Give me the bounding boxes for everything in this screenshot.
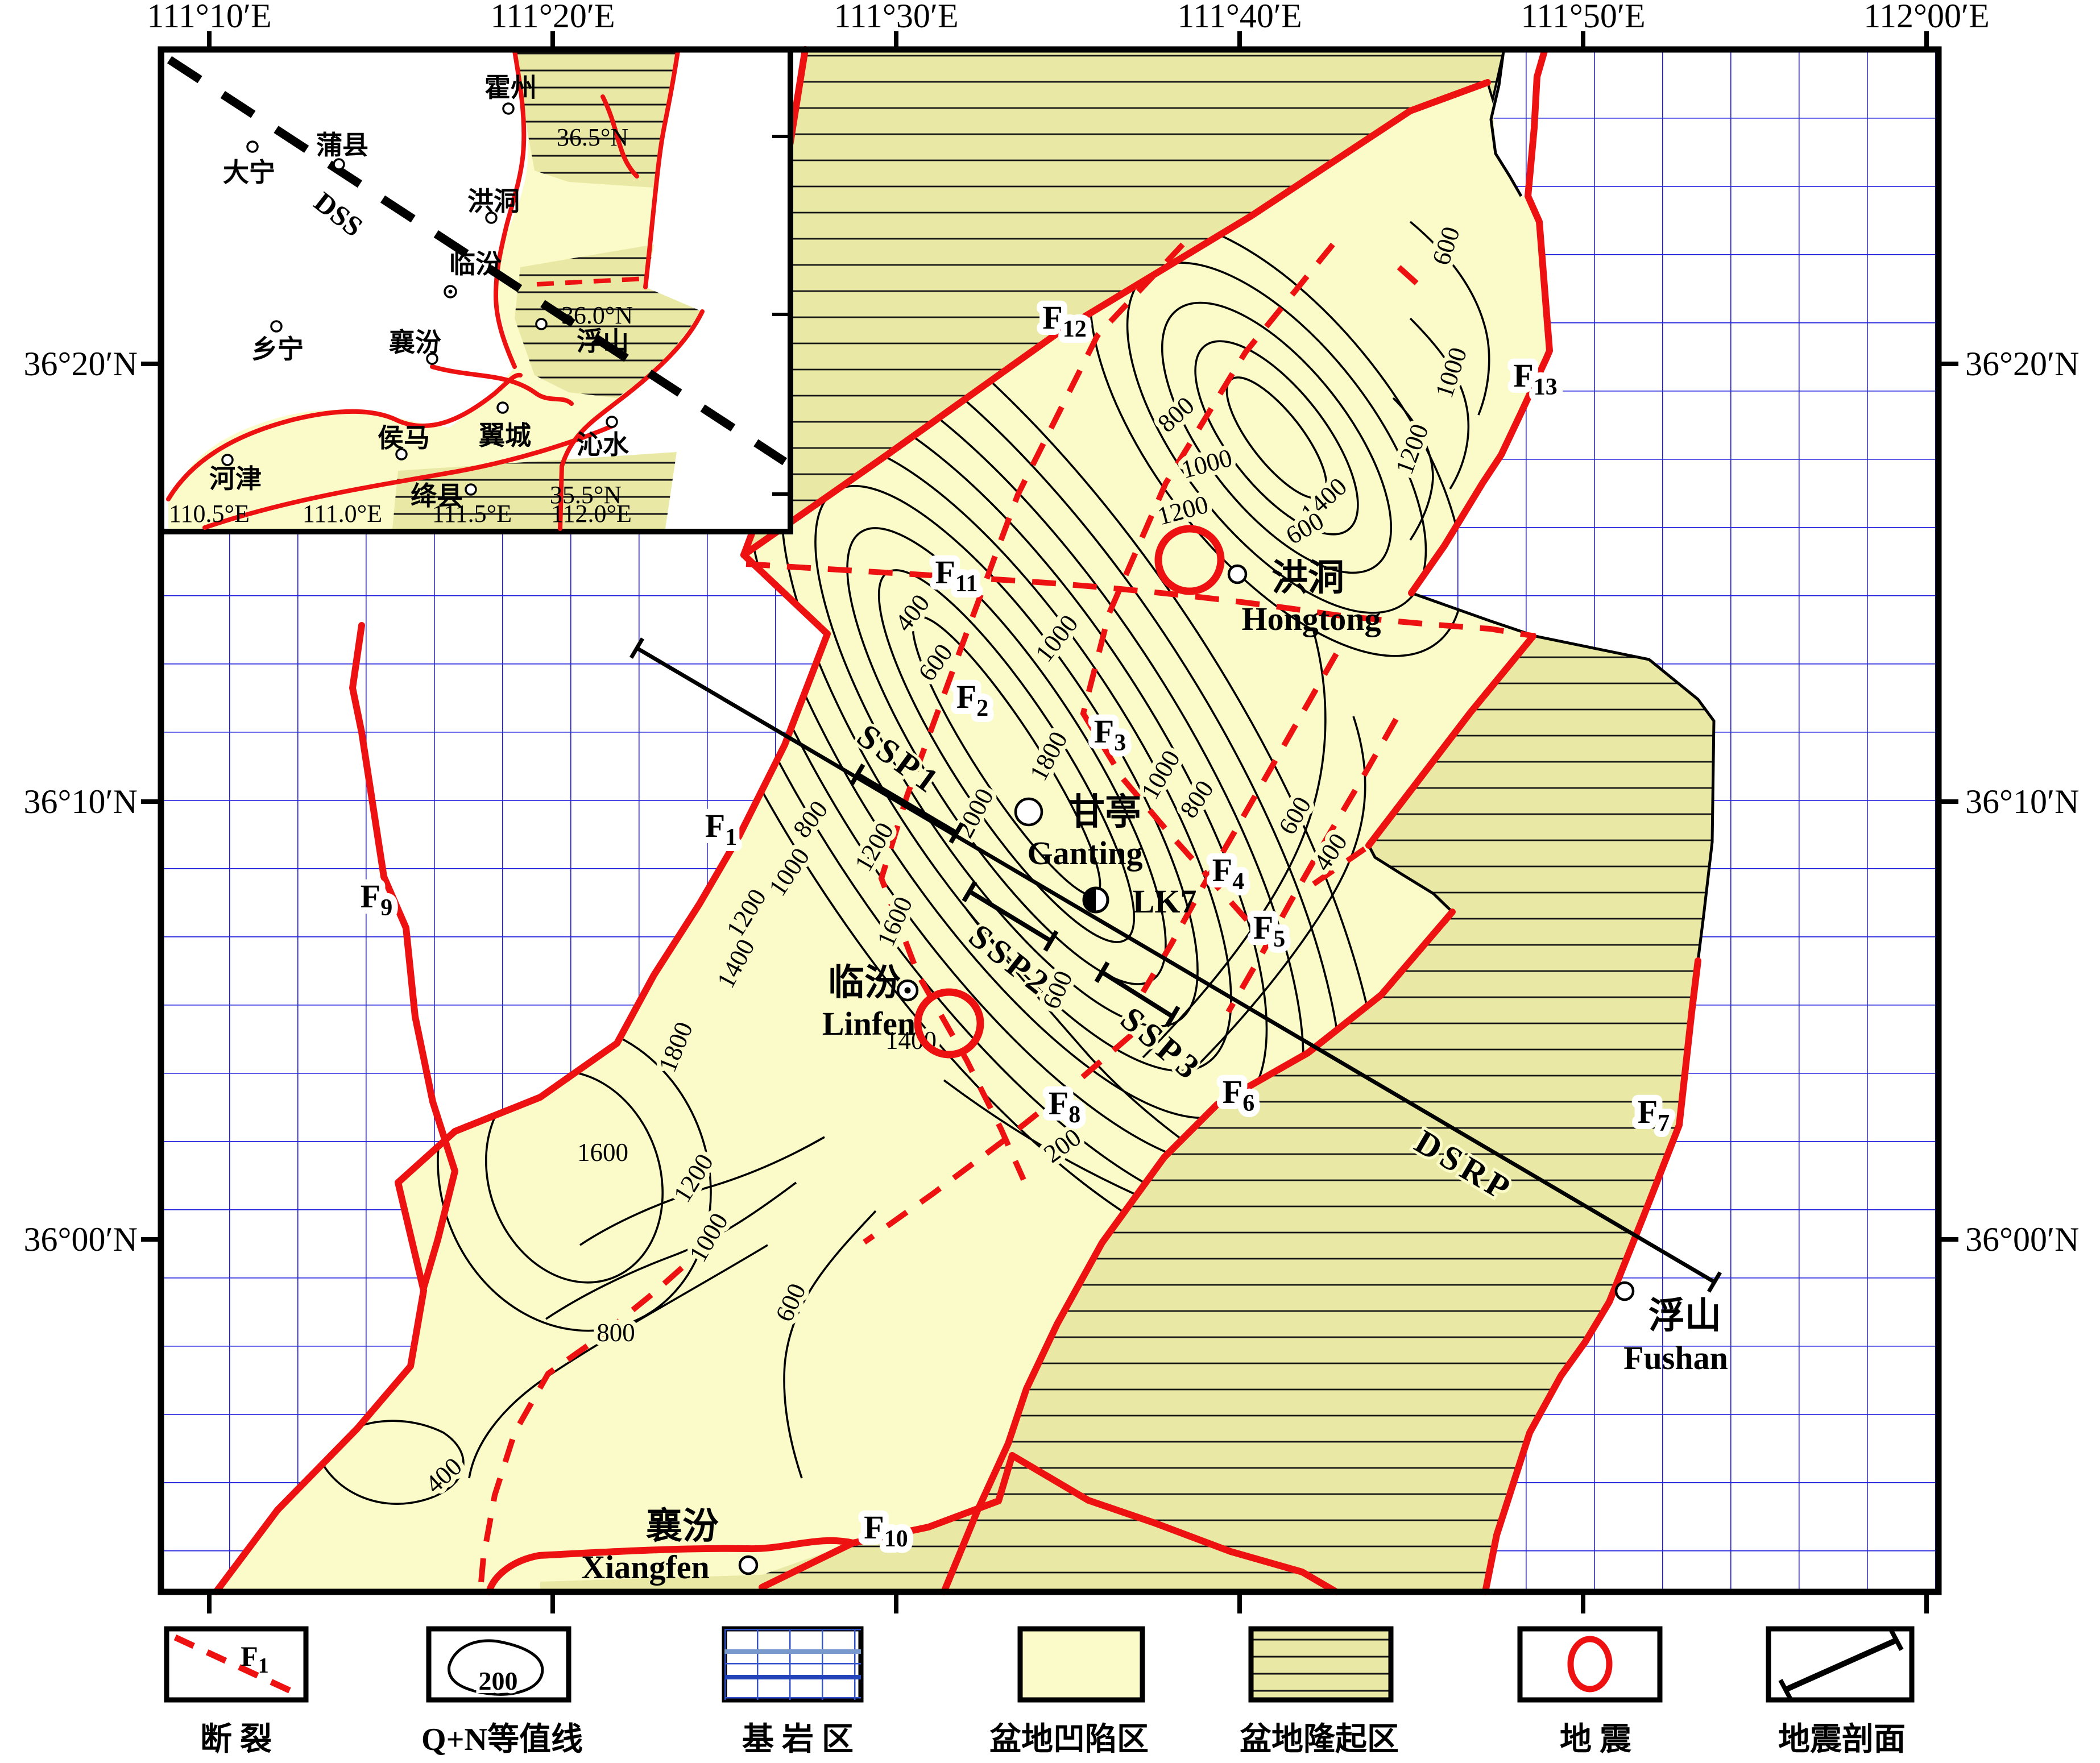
city-label-xiangfen-zh: 襄汾 xyxy=(646,1506,719,1546)
svg-text:襄汾: 襄汾 xyxy=(389,328,441,357)
svg-text:111°40′E: 111°40′E xyxy=(1177,0,1302,35)
svg-text:霍州: 霍州 xyxy=(484,73,537,102)
svg-text:盆地凹陷区: 盆地凹陷区 xyxy=(989,1722,1149,1757)
svg-text:111°30′E: 111°30′E xyxy=(834,0,958,35)
city-label-hongtong-en: Hongtong xyxy=(1242,600,1381,637)
svg-text:111°10′E: 111°10′E xyxy=(147,0,271,35)
svg-text:112°00′E: 112°00′E xyxy=(1863,0,1990,35)
svg-text:36°20′N: 36°20′N xyxy=(24,345,138,383)
svg-text:200: 200 xyxy=(479,1666,518,1695)
svg-text:111°50′E: 111°50′E xyxy=(1521,0,1645,35)
svg-text:洪洞: 洪洞 xyxy=(467,187,520,216)
city-label-ganting-zh: 甘亭 xyxy=(1068,792,1141,832)
city-label-linfen-zh: 临汾 xyxy=(828,963,901,1003)
legend: F1 断 裂 200 Q+N等值线 基 岩 区 盆地凹陷区 盆地隆起区 地 震 … xyxy=(167,1629,1912,1757)
svg-text:36°10′N: 36°10′N xyxy=(24,783,138,820)
city-label-ganting-en: Ganting xyxy=(1027,835,1142,872)
svg-text:沁水: 沁水 xyxy=(577,430,629,459)
svg-text:36°10′N: 36°10′N xyxy=(1965,783,2079,820)
svg-text:112.0°E: 112.0°E xyxy=(551,500,632,528)
legend-item-contour: 200 Q+N等值线 xyxy=(421,1629,583,1757)
svg-text:36°00′N: 36°00′N xyxy=(1965,1221,2079,1258)
svg-text:地震剖面: 地震剖面 xyxy=(1778,1722,1906,1757)
svg-text:111°20′E: 111°20′E xyxy=(490,0,615,35)
svg-text:36°00′N: 36°00′N xyxy=(24,1221,138,1258)
legend-item-depression: 盆地凹陷区 xyxy=(989,1629,1149,1757)
city-label-linfen-en: Linfen xyxy=(822,1005,916,1042)
inset-linfen-dot xyxy=(445,286,456,297)
svg-text:临汾: 临汾 xyxy=(449,250,502,279)
legend-item-bedrock: 基 岩 区 xyxy=(724,1629,861,1757)
svg-text:浮山: 浮山 xyxy=(577,327,629,356)
svg-text:断 裂: 断 裂 xyxy=(200,1722,272,1757)
svg-text:36.0°N: 36.0°N xyxy=(561,301,633,329)
figure: 800 1000 1200 1400 1800 1600 1200 1000 8… xyxy=(0,0,2100,1763)
svg-text:800: 800 xyxy=(597,1318,635,1347)
svg-text:地 震: 地 震 xyxy=(1560,1722,1631,1757)
svg-text:翼城: 翼城 xyxy=(479,421,531,450)
map-canvas: 800 1000 1200 1400 1800 1600 1200 1000 8… xyxy=(0,0,2100,1763)
city-dot-xiangfen xyxy=(740,1557,757,1574)
svg-text:1600: 1600 xyxy=(577,1138,628,1167)
city-dot-ganting xyxy=(1016,799,1042,825)
city-label-hongtong-zh: 洪洞 xyxy=(1271,558,1344,598)
svg-text:Q+N等值线: Q+N等值线 xyxy=(421,1722,583,1757)
city-label-xiangfen-en: Xiangfen xyxy=(581,1549,710,1586)
inset-uplift-north xyxy=(515,51,678,188)
well-lk7-label: LK7 xyxy=(1133,883,1197,920)
city-label-fushan-en: Fushan xyxy=(1623,1339,1728,1376)
inset-map: DSS 霍州 蒲县 大宁 洪洞 临汾 乡宁 襄汾 浮山 侯马 翼城 沁水 河津 … xyxy=(161,49,790,532)
city-label-fushan-zh: 浮山 xyxy=(1648,1296,1721,1336)
svg-text:基 岩 区: 基 岩 区 xyxy=(742,1722,854,1757)
city-dot-fushan xyxy=(1616,1283,1633,1300)
svg-text:蒲县: 蒲县 xyxy=(316,131,368,160)
city-dot-linfen xyxy=(898,981,917,1000)
svg-text:盆地隆起区: 盆地隆起区 xyxy=(1240,1722,1399,1757)
svg-text:36°20′N: 36°20′N xyxy=(1965,345,2079,383)
svg-text:河津: 河津 xyxy=(209,464,262,493)
legend-item-fault: F1 断 裂 xyxy=(167,1629,306,1757)
legend-item-earthquake: 地 震 xyxy=(1520,1629,1660,1757)
city-dot-hongtong xyxy=(1229,566,1246,583)
legend-item-profile: 地震剖面 xyxy=(1768,1629,1912,1757)
well-lk7-symbol xyxy=(1084,888,1108,912)
svg-text:111.0°E: 111.0°E xyxy=(303,500,382,528)
svg-text:乡宁: 乡宁 xyxy=(251,335,304,364)
legend-item-uplift: 盆地隆起区 xyxy=(1240,1629,1399,1757)
svg-text:大宁: 大宁 xyxy=(223,158,275,187)
svg-text:侯马: 侯马 xyxy=(378,424,430,453)
svg-text:110.5°E: 110.5°E xyxy=(169,500,250,528)
svg-text:111.5°E: 111.5°E xyxy=(432,500,512,528)
svg-text:36.5°N: 36.5°N xyxy=(557,123,628,151)
